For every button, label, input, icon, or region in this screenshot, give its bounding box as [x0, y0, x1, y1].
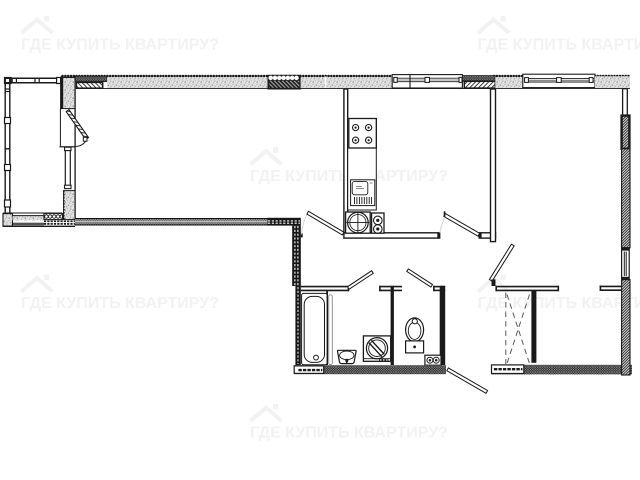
- svg-text:ГДЕ КУПИТЬ КВАРТИРУ?: ГДЕ КУПИТЬ КВАРТИРУ?: [21, 37, 219, 54]
- svg-text:ГДЕ КУПИТЬ КВАРТИРУ?: ГДЕ КУПИТЬ КВАРТИРУ?: [478, 37, 640, 54]
- svg-text:ГДЕ КУПИТЬ КВАРТИРУ?: ГДЕ КУПИТЬ КВАРТИРУ?: [250, 425, 448, 442]
- svg-text:ГДЕ КУПИТЬ КВАРТИРУ?: ГДЕ КУПИТЬ КВАРТИРУ?: [21, 295, 219, 312]
- svg-text:ГДЕ КУПИТЬ КВАРТИРУ?: ГДЕ КУПИТЬ КВАРТИРУ?: [478, 295, 640, 312]
